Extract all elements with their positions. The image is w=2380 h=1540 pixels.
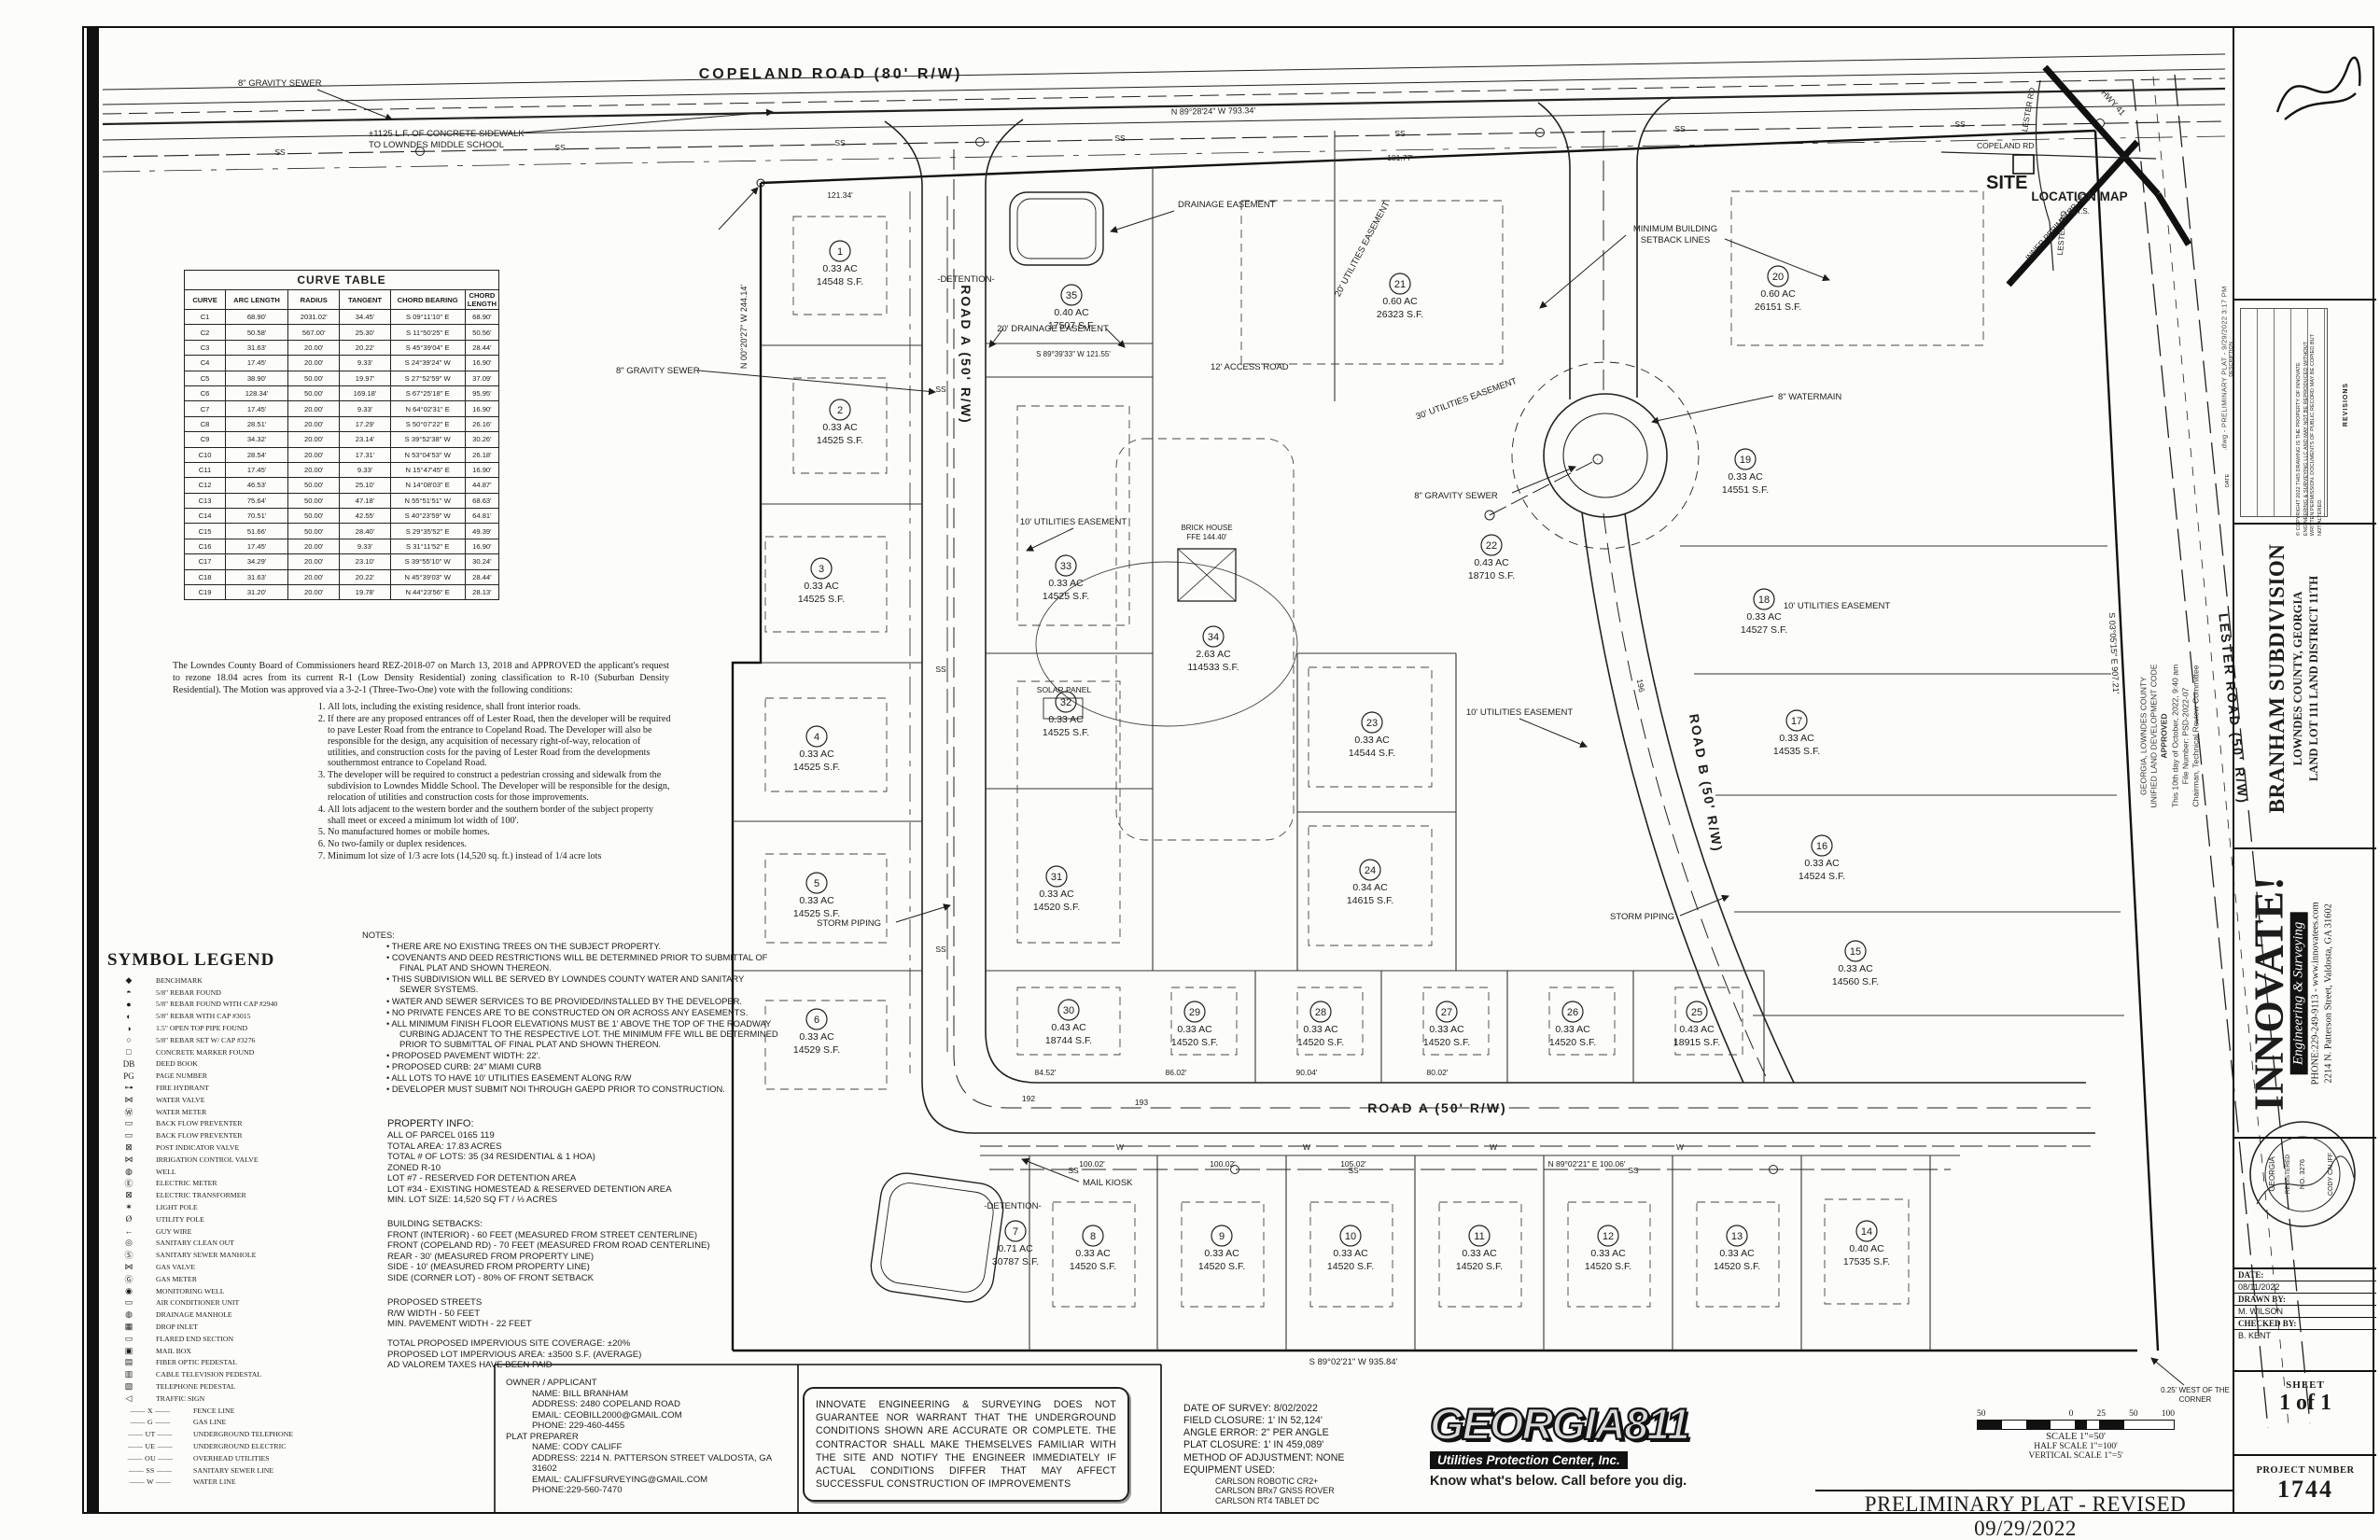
svg-text:DRAINAGE EASEMENT: DRAINAGE EASEMENT: [1178, 200, 1276, 210]
sheet-number-section: SHEET 1 of 1: [2234, 1370, 2376, 1454]
legend-linetype-icon: —— UE ——: [107, 1442, 193, 1450]
svg-text:14520 S.F.: 14520 S.F.: [1327, 1261, 1374, 1272]
setback-line: SIDE - 10' (MEASURED FROM PROPERTY LINE): [387, 1262, 710, 1273]
legend-symbol-icon: ✶: [115, 1202, 143, 1212]
legend-symbol-icon: ⊠: [115, 1190, 143, 1200]
legend-item: ⊠ ELECTRIC TRANSFORMER: [107, 1189, 357, 1201]
legend-symbol-icon: ⋈: [115, 1095, 143, 1105]
legend-line-item: —— W —— WATER LINE: [107, 1476, 357, 1488]
svg-text:0.33 AC: 0.33 AC: [1039, 889, 1074, 900]
svg-text:14520 S.F.: 14520 S.F.: [1070, 1261, 1116, 1272]
svg-text:35: 35: [1066, 290, 1077, 301]
svg-text:0.33 AC: 0.33 AC: [1719, 1248, 1755, 1259]
project-number-value: 1744: [2234, 1476, 2376, 1504]
svg-text:20' UTILITIES EASEMENT: 20' UTILITIES EASEMENT: [1333, 200, 1392, 299]
survey-line: METHOD OF ADJUSTMENT: NONE: [1183, 1452, 1344, 1464]
utility-tags-roads: SSSSSS SSSSSS WWWW: [935, 385, 1684, 1175]
notes-list: THERE ARE NO EXISTING TREES ON THE SUBJE…: [386, 941, 778, 1094]
legend-symbol-icon: ▦: [115, 1322, 143, 1332]
svg-text:26: 26: [1567, 1007, 1578, 1018]
svg-text:2: 2: [837, 405, 843, 416]
svg-text:30787 S.F.: 30787 S.F.: [992, 1256, 1039, 1267]
svg-text:25: 25: [1691, 1007, 1702, 1018]
svg-text:HWY 41: HWY 41: [2099, 88, 2127, 117]
drawn-by-value: M. WILSON: [2234, 1306, 2376, 1318]
svg-text:14520 S.F.: 14520 S.F.: [1297, 1037, 1344, 1048]
svg-text:0.33 AC: 0.33 AC: [822, 263, 858, 274]
credits-section: DATE: 08/11/2022 DRAWN BY: M. WILSON CHE…: [2234, 1267, 2376, 1370]
svg-text:84.52': 84.52': [1035, 1068, 1057, 1077]
svg-text:14548 S.F.: 14548 S.F.: [817, 276, 863, 287]
streets-block: PROPOSED STREETS R/W WIDTH - 50 FEETMIN.…: [387, 1297, 532, 1330]
project-number-section: PROJECT NUMBER 1744: [2234, 1454, 2376, 1512]
svg-text:11: 11: [1474, 1231, 1484, 1242]
legend-item: ← GUY WIRE: [107, 1225, 357, 1238]
svg-text:±1125 L.F. OF CONCRETE SIDEWAL: ±1125 L.F. OF CONCRETE SIDEWALK: [369, 129, 525, 139]
svg-text:0.33 AC: 0.33 AC: [1333, 1248, 1368, 1259]
property-info-line: LOT #7 - RESERVED FOR DETENTION AREA: [387, 1173, 672, 1184]
road-a-vertical-label: ROAD A (50' R/W): [959, 285, 973, 424]
sheet-footer-title: PRELIMINARY PLAT - REVISED 09/29/2022: [1820, 1492, 2231, 1540]
svg-text:SS: SS: [1674, 124, 1686, 133]
svg-text:SS: SS: [1114, 133, 1126, 143]
svg-text:14520 S.F.: 14520 S.F.: [1585, 1261, 1631, 1272]
revisions-title: REVISIONS: [2343, 383, 2349, 427]
legend-item: ✶ LIGHT POLE: [107, 1201, 357, 1213]
impervious-line: TOTAL PROPOSED IMPERVIOUS SITE COVERAGE:…: [387, 1338, 641, 1350]
svg-text:8" GRAVITY SEWER: 8" GRAVITY SEWER: [616, 366, 700, 376]
curve-table: CURVE TABLE CURVE ARC LENGTH RADIUS TANG…: [184, 270, 499, 600]
svg-text:FFE 144.40': FFE 144.40': [1186, 533, 1227, 541]
svg-text:SS: SS: [935, 385, 946, 394]
svg-text:7: 7: [1013, 1226, 1018, 1238]
owner-line: PHONE: 229-460-4455: [532, 1421, 786, 1432]
legend-line-item: —— UT —— UNDERGROUND TELEPHONE: [107, 1428, 357, 1440]
bearing-bottom: S 89°02'21" W 935.84': [1309, 1357, 1398, 1367]
svg-text:SS: SS: [1394, 129, 1406, 138]
note-item: COVENANTS AND DEED RESTRICTIONS WILL BE …: [386, 952, 778, 973]
survey-line: PLAT CLOSURE: 1' IN 459,089': [1183, 1439, 1344, 1451]
legend-item: ⊶ FIRE HYDRANT: [107, 1082, 357, 1094]
revisions-date-col: DATE: [2225, 474, 2231, 487]
legend-item: Ⓖ GAS METER: [107, 1273, 357, 1285]
svg-text:29: 29: [1189, 1007, 1200, 1018]
svg-text:0.33 AC: 0.33 AC: [799, 895, 834, 906]
rezoning-condition: All lots, including the existing residen…: [328, 702, 671, 713]
property-info-title: PROPERTY INFO:: [387, 1118, 672, 1130]
svg-text:5: 5: [814, 878, 819, 889]
svg-text:30' UTILITIES EASEMENT: 30' UTILITIES EASEMENT: [1415, 376, 1519, 422]
property-boundary: [733, 131, 2158, 1351]
scale-bar: 500 2550100 SCALE 1"=50' HALF SCALE 1"=1…: [1977, 1409, 2175, 1461]
legend-symbol-icon: ◑: [115, 1024, 143, 1033]
curve-table-row: C6128.34'50.00' 169.18'S 67°25'18" E95.9…: [185, 385, 499, 400]
svg-text:18710 S.F.: 18710 S.F.: [1468, 570, 1515, 581]
curve-table-row: C1028.54'20.00' 17.31'N 53°04'53" W26.18…: [185, 447, 499, 462]
legend-symbol-icon: ▧: [115, 1381, 143, 1392]
drawn-by-label: DRAWN BY:: [2238, 1295, 2286, 1304]
svg-text:19: 19: [1740, 455, 1751, 466]
rezoning-condition: No two-family or duplex residences.: [328, 839, 671, 850]
legend-symbol-icon: ▭: [115, 1334, 143, 1344]
note-item: ALL MINIMUM FINISH FLOOR ELEVATIONS MUST…: [386, 1018, 778, 1049]
county-line: LOWNDES COUNTY, GEORGIA: [2291, 525, 2305, 833]
svg-text:15: 15: [1850, 946, 1861, 958]
svg-text:17: 17: [1791, 716, 1802, 727]
curve-table-row: C168.90'2031.02' 34.45'S 09°11'10" E68.9…: [185, 310, 499, 325]
date-label: DATE:: [2238, 1270, 2263, 1280]
curve-table-row: C1551.66'50.00' 28.40'S 29°35'52" E49.39…: [185, 524, 499, 539]
svg-text:10: 10: [1345, 1231, 1356, 1242]
landlot-line: LAND LOT 111 LAND DISTRICT 11TH: [2307, 525, 2321, 833]
svg-text:14524 S.F.: 14524 S.F.: [1799, 871, 1845, 882]
svg-text:14544 S.F.: 14544 S.F.: [1349, 748, 1395, 759]
legend-item: ▤ FIBER OPTIC PEDESTAL: [107, 1357, 357, 1369]
legend-item: ▥ CABLE TELEVISION PEDESTAL: [107, 1368, 357, 1380]
legend-symbol-icon: PG: [115, 1071, 143, 1081]
legend-item: ◍ DRAINAGE MANHOLE: [107, 1309, 357, 1321]
svg-text:W: W: [1676, 1142, 1684, 1152]
svg-text:0.33 AC: 0.33 AC: [799, 749, 834, 760]
note-item: PROPOSED PAVEMENT WIDTH: 22'.: [386, 1050, 778, 1060]
svg-text:0.33 AC: 0.33 AC: [1048, 578, 1084, 589]
legend-linetype-icon: —— G ——: [107, 1418, 193, 1426]
svg-text:31: 31: [1051, 872, 1062, 883]
owner-line: NAME: BILL BRANHAM: [532, 1389, 786, 1400]
legend-symbol-icon: ▭: [115, 1297, 143, 1308]
svg-text:0.34 AC: 0.34 AC: [1352, 882, 1388, 893]
svg-text:0.33 AC: 0.33 AC: [1177, 1024, 1212, 1035]
svg-text:0.33 AC: 0.33 AC: [1429, 1024, 1464, 1035]
ss-labels-copeland: SSSS SSSS SSSS SS: [274, 119, 1966, 157]
rezoning-conditions: All lots, including the existing residen…: [313, 702, 671, 862]
svg-text:SS: SS: [1954, 119, 1966, 129]
svg-text:0.33 AC: 0.33 AC: [1804, 858, 1840, 869]
legend-symbol-icon: ◍: [115, 1309, 143, 1320]
svg-text:14520 S.F.: 14520 S.F.: [1423, 1037, 1470, 1048]
svg-text:14: 14: [1861, 1226, 1872, 1238]
street-line: R/W WIDTH - 50 FEET: [387, 1309, 532, 1320]
svg-text:0.33 AC: 0.33 AC: [1590, 1248, 1626, 1259]
survey-line: FIELD CLOSURE: 1' IN 52,124': [1183, 1415, 1344, 1427]
vertical-scale-text: VERTICAL SCALE 1"=5': [1977, 1451, 2175, 1461]
svg-text:STORM PIPING: STORM PIPING: [817, 918, 881, 929]
svg-text:0.33 AC: 0.33 AC: [1555, 1024, 1590, 1035]
legend-symbol-icon: ▭: [115, 1118, 143, 1128]
svg-text:90.04': 90.04': [1296, 1068, 1318, 1077]
note-item: WATER AND SEWER SERVICES TO BE PROVIDED/…: [386, 996, 778, 1006]
date-value: 08/11/2022: [2234, 1281, 2376, 1294]
owner-title: OWNER / APPLICANT: [506, 1378, 786, 1389]
georgia811-wordmark: GEORGIA811: [1430, 1398, 1688, 1449]
svg-text:W: W: [1116, 1142, 1124, 1152]
svg-text:0.43 AC: 0.43 AC: [1051, 1022, 1086, 1033]
legend-symbol-icon: ⊶: [115, 1083, 143, 1093]
legend-symbol-icon: ▭: [115, 1130, 143, 1141]
svg-text:-DETENTION-: -DETENTION-: [937, 274, 994, 285]
svg-text:14527 S.F.: 14527 S.F.: [1741, 624, 1787, 636]
copyright-note: © COPYRIGHT 2022 THIS DRAWING IS THE PRO…: [2296, 325, 2324, 536]
curve-table-row: C1470.51'50.00' 42.55'S 40°23'59" W64.81…: [185, 509, 499, 524]
sheet-value: 1 of 1: [2234, 1391, 2376, 1416]
setbacks-block: BUILDING SETBACKS: FRONT (INTERIOR) - 60…: [387, 1219, 710, 1283]
svg-text:SS: SS: [554, 143, 566, 152]
firm-section: INNOVATE! Engineering & Surveying PHONE:…: [2234, 847, 2376, 1137]
curve-table-headers: CURVE ARC LENGTH RADIUS TANGENT CHORD BE…: [185, 290, 499, 310]
legend-symbol-icon: ◐: [115, 1012, 143, 1021]
svg-text:0.33 AC: 0.33 AC: [804, 581, 839, 592]
legend-item: ▧ TELEPHONE PEDESTAL: [107, 1380, 357, 1393]
svg-text:12: 12: [1603, 1231, 1614, 1242]
curve-table-row: C828.51'20.00' 17.29'S 50°07'22" E26.16': [185, 416, 499, 431]
detention-pond-north: -DETENTION- DRAINAGE EASEMENT 20' DRAINA…: [937, 192, 1288, 372]
svg-text:SS: SS: [1068, 1166, 1079, 1175]
curve-table-row: C538.90'50.00' 19.97'S 27°52'59" W37.09': [185, 371, 499, 385]
sheet-label: SHEET: [2234, 1379, 2376, 1391]
svg-text:14520 S.F.: 14520 S.F.: [1714, 1261, 1760, 1272]
approval-stamp: GEORGIA, LOWNDES COUNTY UNIFIED LAND DEV…: [2138, 557, 2201, 916]
note-item: THERE ARE NO EXISTING TREES ON THE SUBJE…: [386, 941, 778, 951]
svg-text:18915 S.F.: 18915 S.F.: [1673, 1037, 1720, 1048]
legend-item: ◍ WELL: [107, 1166, 357, 1178]
svg-text:121.34': 121.34': [827, 190, 853, 200]
preparer-line: ADDRESS: 2214 N. PATTERSON STREET VALDOS…: [532, 1453, 786, 1475]
setback-line: REAR - 30' (MEASURED FROM PROPERTY LINE): [387, 1252, 710, 1263]
svg-text:17535 S.F.: 17535 S.F.: [1843, 1256, 1890, 1267]
firm-logo: INNOVATE! Engineering & Surveying PHONE:…: [2251, 853, 2334, 1133]
svg-text:0.33 AC: 0.33 AC: [799, 1031, 834, 1043]
svg-text:14525 S.F.: 14525 S.F.: [793, 762, 840, 773]
legend-item: Ø UTILITY POLE: [107, 1213, 357, 1225]
detention-pond-south: -DETENTION-: [868, 1169, 1042, 1305]
legend-symbol-icon: ◓: [115, 987, 143, 997]
firm-phone: PHONE:229-249-9113 - www.innovatees.com: [2310, 853, 2320, 1133]
svg-text:101.77': 101.77': [1387, 153, 1413, 162]
plat-annotations: 20' UTILITIES EASEMENT 30' UTILITIES EAS…: [616, 200, 2230, 1404]
rezoning-condition: The developer will be required to constr…: [328, 770, 671, 803]
svg-text:0.33 AC: 0.33 AC: [822, 422, 858, 433]
svg-text:N.T.S.: N.T.S.: [2069, 207, 2090, 216]
setback-line: SIDE (CORNER LOT) - 80% OF FRONT SETBACK: [387, 1273, 710, 1284]
preparer-line: PHONE:229-560-7470: [532, 1485, 786, 1496]
svg-text:23: 23: [1366, 718, 1378, 729]
copeland-road-label: COPELAND ROAD (80' R/W): [699, 66, 963, 82]
survey-line: EQUIPMENT USED:: [1183, 1464, 1344, 1477]
svg-text:12' ACCESS ROAD: 12' ACCESS ROAD: [1211, 362, 1289, 372]
svg-text:0.43 AC: 0.43 AC: [1474, 557, 1509, 568]
svg-text:SS: SS: [274, 147, 286, 157]
property-info-line: LOT #34 - EXISTING HOMESTEAD & RESERVED …: [387, 1184, 672, 1196]
svg-text:16: 16: [1816, 841, 1827, 852]
scale-bar-graphic: [1977, 1420, 2175, 1430]
legend-symbol-icon: ◎: [115, 1238, 143, 1248]
svg-text:10' UTILITIES EASEMENT: 10' UTILITIES EASEMENT: [1466, 707, 1573, 718]
legend-linetype-icon: —— SS ——: [107, 1466, 193, 1475]
svg-text:MINIMUM BUILDING: MINIMUM BUILDING: [1633, 224, 1717, 234]
survey-info: DATE OF SURVEY: 8/02/2022FIELD CLOSURE: …: [1183, 1403, 1344, 1505]
curve-table-row: C331.63'20.00' 20.22'S 45°39'04" E28.44': [185, 340, 499, 355]
legend-item: ▦ DROP INLET: [107, 1321, 357, 1333]
impervious-line: PROPOSED LOT IMPERVIOUS AREA: ±3500 S.F.…: [387, 1350, 641, 1361]
legend-symbol-icon: ◁: [115, 1393, 143, 1404]
svg-text:SS: SS: [935, 945, 946, 954]
svg-text:SS: SS: [834, 138, 846, 147]
note-item: THIS SUBDIVISION WILL BE SERVED BY LOWND…: [386, 973, 778, 994]
svg-text:10' UTILITIES EASEMENT: 10' UTILITIES EASEMENT: [1020, 517, 1127, 527]
setback-line: FRONT (INTERIOR) - 60 FEET (MEASURED FRO…: [387, 1230, 710, 1241]
legend-item: Ⓢ SANITARY SEWER MANHOLE: [107, 1249, 357, 1261]
svg-text:100.02': 100.02': [1079, 1159, 1105, 1169]
svg-text:196: 196: [1635, 679, 1646, 693]
legend-line-item: —— G —— GAS LINE: [107, 1416, 357, 1428]
svg-text:8" GRAVITY SEWER: 8" GRAVITY SEWER: [1414, 491, 1498, 501]
svg-text:SITE: SITE: [1986, 173, 2027, 193]
svg-text:0.33 AC: 0.33 AC: [1838, 963, 1873, 974]
svg-text:14525 S.F.: 14525 S.F.: [817, 435, 863, 446]
legend-symbol-icon: Ⓢ: [115, 1249, 143, 1261]
property-info-line: ZONED R-10: [387, 1163, 672, 1174]
svg-text:20: 20: [1772, 272, 1784, 283]
curve-table-row: C1831.63'20.00' 20.22'N 45°39'03" W28.44…: [185, 569, 499, 584]
rezoning-intro: The Lowndes County Board of Commissioner…: [173, 661, 669, 696]
svg-text:30: 30: [1063, 1005, 1074, 1016]
svg-text:8" WATERMAIN: 8" WATERMAIN: [1778, 392, 1841, 402]
scale-ticks: 500 2550100: [1977, 1409, 2175, 1419]
legend-symbol-icon: ▥: [115, 1369, 143, 1379]
rezoning-condition: No manufactured homes or mobile homes.: [328, 827, 671, 838]
legend-linetype-icon: —— W ——: [107, 1477, 193, 1486]
firm-name: INNOVATE!: [2251, 853, 2289, 1133]
note-item: ALL LOTS TO HAVE 10' UTILITIES EASEMENT …: [386, 1072, 778, 1083]
survey-line: ANGLE ERROR: 2" PER ANGLE: [1183, 1427, 1344, 1439]
owner-block: OWNER / APPLICANT NAME: BILL BRANHAMADDR…: [506, 1378, 786, 1496]
curve-table-row: C1617.45'20.00' 9.33'S 31°11'52" E16.90': [185, 539, 499, 553]
svg-text:0.33 AC: 0.33 AC: [1462, 1248, 1497, 1259]
svg-text:1: 1: [837, 246, 843, 258]
georgia811-logo: GEORGIA811 Utilities Protection Center, …: [1430, 1398, 1688, 1489]
legend-item: Ⓔ ELECTRIC METER: [107, 1178, 357, 1190]
curve-table-title: CURVE TABLE: [185, 271, 499, 290]
svg-text:0.60 AC: 0.60 AC: [1382, 296, 1418, 307]
svg-text:W: W: [1490, 1142, 1497, 1152]
gravity-sewer-note-top: 8" GRAVITY SEWER: [238, 78, 392, 119]
svg-text:80.02': 80.02': [1427, 1068, 1449, 1077]
svg-text:34: 34: [1208, 632, 1219, 643]
svg-text:100.02': 100.02': [1210, 1159, 1236, 1169]
svg-text:MAIL KIOSK: MAIL KIOSK: [1083, 1178, 1133, 1188]
svg-text:COPELAND RD: COPELAND RD: [1977, 141, 2034, 150]
legend-item: ⊠ POST INDICATOR VALVE: [107, 1141, 357, 1154]
seal-section: [2234, 1137, 2376, 1267]
svg-text:22: 22: [1486, 540, 1497, 552]
setbacks-title: BUILDING SETBACKS:: [387, 1219, 710, 1230]
svg-text:STORM PIPING: STORM PIPING: [1610, 912, 1674, 922]
svg-text:10' UTILITIES EASEMENT: 10' UTILITIES EASEMENT: [1784, 601, 1890, 611]
legend-symbol-icon: ●: [115, 1000, 143, 1009]
note-item: PROPOSED CURB: 24" MIAMI CURB: [386, 1061, 778, 1071]
note-item: NO PRIVATE FENCES ARE TO BE CONSTRUCTED …: [386, 1007, 778, 1017]
svg-text:CORNER: CORNER: [2179, 1395, 2212, 1404]
svg-text:105.02': 105.02': [1340, 1159, 1366, 1169]
survey-line: DATE OF SURVEY: 8/02/2022: [1183, 1403, 1344, 1415]
legend-symbol-icon: ⋈: [115, 1262, 143, 1272]
curve-table-row: C250.58'567.00' 25.30'S 11°50'25" E50.56…: [185, 325, 499, 340]
property-info-line: TOTAL # OF LOTS: 35 (34 RESIDENTIAL & 1 …: [387, 1152, 672, 1163]
svg-text:6: 6: [814, 1015, 819, 1026]
svg-text:18: 18: [1758, 595, 1770, 606]
title-block: REVISIONS DATE DESCRIPTION © COPYRIGHT 2…: [2233, 26, 2376, 1512]
project-title: BRANHAM SUBDIVISION LOWNDES COUNTY, GEOR…: [2265, 525, 2321, 833]
legend-item: Ⓦ WATER METER: [107, 1106, 357, 1118]
corner-leader: [719, 188, 758, 230]
svg-text:8" GRAVITY SEWER: 8" GRAVITY SEWER: [238, 78, 322, 89]
legend-item: PG PAGE NUMBER: [107, 1070, 357, 1082]
svg-text:TO LOWNDES MIDDLE SCHOOL: TO LOWNDES MIDDLE SCHOOL: [369, 140, 504, 150]
legend-line-item: —— X —— FENCE LINE: [107, 1405, 357, 1417]
legend-symbol-icon: ⊠: [115, 1142, 143, 1153]
legend-symbol-icon: ⋈: [115, 1155, 143, 1165]
svg-text:9: 9: [1219, 1231, 1225, 1242]
legend-item: □ CONCRETE MARKER FOUND: [107, 1046, 357, 1058]
legend-symbol-icon: Ⓔ: [115, 1177, 143, 1189]
legend-symbol-icon: Ⓖ: [115, 1273, 143, 1285]
svg-text:0.33 AC: 0.33 AC: [1204, 1248, 1239, 1259]
curve-table-row: C934.32'20.00' 23.14'S 39°52'38" W30.26': [185, 432, 499, 447]
bearing-east: S 03°05'15" E 907.21': [2107, 612, 2121, 694]
svg-text:0.33 AC: 0.33 AC: [1779, 733, 1814, 744]
georgia811-tagline: Know what's below. Call before you dig.: [1430, 1474, 1688, 1489]
curve-table-row: C1246.53'50.00' 25.10'N 14°08'03" E44.87…: [185, 478, 499, 493]
lot-labels: 10.33 AC14548 S.F. 20.33 AC14525 S.F. 30…: [793, 241, 1890, 1272]
svg-text:192: 192: [1022, 1094, 1035, 1103]
road-a-horizontal-label: ROAD A (50' R/W): [1367, 1100, 1506, 1115]
svg-text:14535 S.F.: 14535 S.F.: [1773, 746, 1820, 757]
property-info: PROPERTY INFO: ALL OF PARCEL 0165 119TOT…: [387, 1118, 672, 1206]
plat-dimensions: 121.34' 101.77' 84.52' 86.02' 90.04' 80.…: [827, 153, 1646, 1169]
owner-lines: NAME: BILL BRANHAMADDRESS: 2480 COPELAND…: [532, 1389, 786, 1432]
rezoning-condition: Minimum lot size of 1/3 acre lots (14,52…: [328, 851, 671, 862]
svg-text:S 89°39'33" W 121.55': S 89°39'33" W 121.55': [1036, 350, 1111, 358]
svg-text:21: 21: [1394, 279, 1406, 290]
svg-text:0.71 AC: 0.71 AC: [998, 1243, 1033, 1254]
svg-text:14520 S.F.: 14520 S.F.: [1456, 1261, 1503, 1272]
equipment-lines: CARLSON ROBOTIC CR2+CARLSON BRx7 GNSS RO…: [1215, 1477, 1344, 1506]
svg-text:27: 27: [1441, 1007, 1452, 1018]
legend-item: ▭ AIR CONDITIONER UNIT: [107, 1297, 357, 1309]
curve-table-row: C1117.45'20.00' 9.33'N 15°47'45" E16.90': [185, 462, 499, 477]
svg-text:26151 S.F.: 26151 S.F.: [1755, 301, 1801, 313]
svg-text:SOLAR PANEL: SOLAR PANEL: [1037, 685, 1092, 694]
legend-item: ▭ BACK FLOW PREVENTER: [107, 1118, 357, 1130]
symbol-legend: SYMBOL LEGEND ◆ BENCHMARK ◓ 5/8" REBAR F…: [107, 950, 357, 1488]
rezoning-block: The Lowndes County Board of Commissioner…: [173, 661, 669, 863]
project-title-section: BRANHAM SUBDIVISION LOWNDES COUNTY, GEOR…: [2234, 523, 2376, 847]
preparer-line: NAME: CODY CALIFF: [532, 1442, 786, 1453]
legend-symbol-icon: ◆: [115, 975, 143, 986]
svg-text:33: 33: [1060, 561, 1071, 572]
streets-title: PROPOSED STREETS: [387, 1297, 532, 1309]
svg-text:14525 S.F.: 14525 S.F.: [798, 594, 845, 605]
legend-line-item: —— OU —— OVERHEAD UTILITIES: [107, 1452, 357, 1464]
georgia811-subtitle: Utilities Protection Center, Inc.: [1430, 1451, 1628, 1469]
svg-text:32: 32: [1060, 697, 1071, 708]
svg-text:86.02': 86.02': [1166, 1068, 1187, 1077]
plat-sheet: COPELAND ROAD (80' R/W) N 89°28'24" W 79…: [0, 0, 2380, 1540]
svg-text:0.40 AC: 0.40 AC: [1054, 307, 1089, 318]
legend-item: ⋈ WATER VALVE: [107, 1094, 357, 1106]
legend-symbol-icon: DB: [115, 1059, 143, 1069]
legend-linetype-icon: —— OU ——: [107, 1454, 193, 1463]
